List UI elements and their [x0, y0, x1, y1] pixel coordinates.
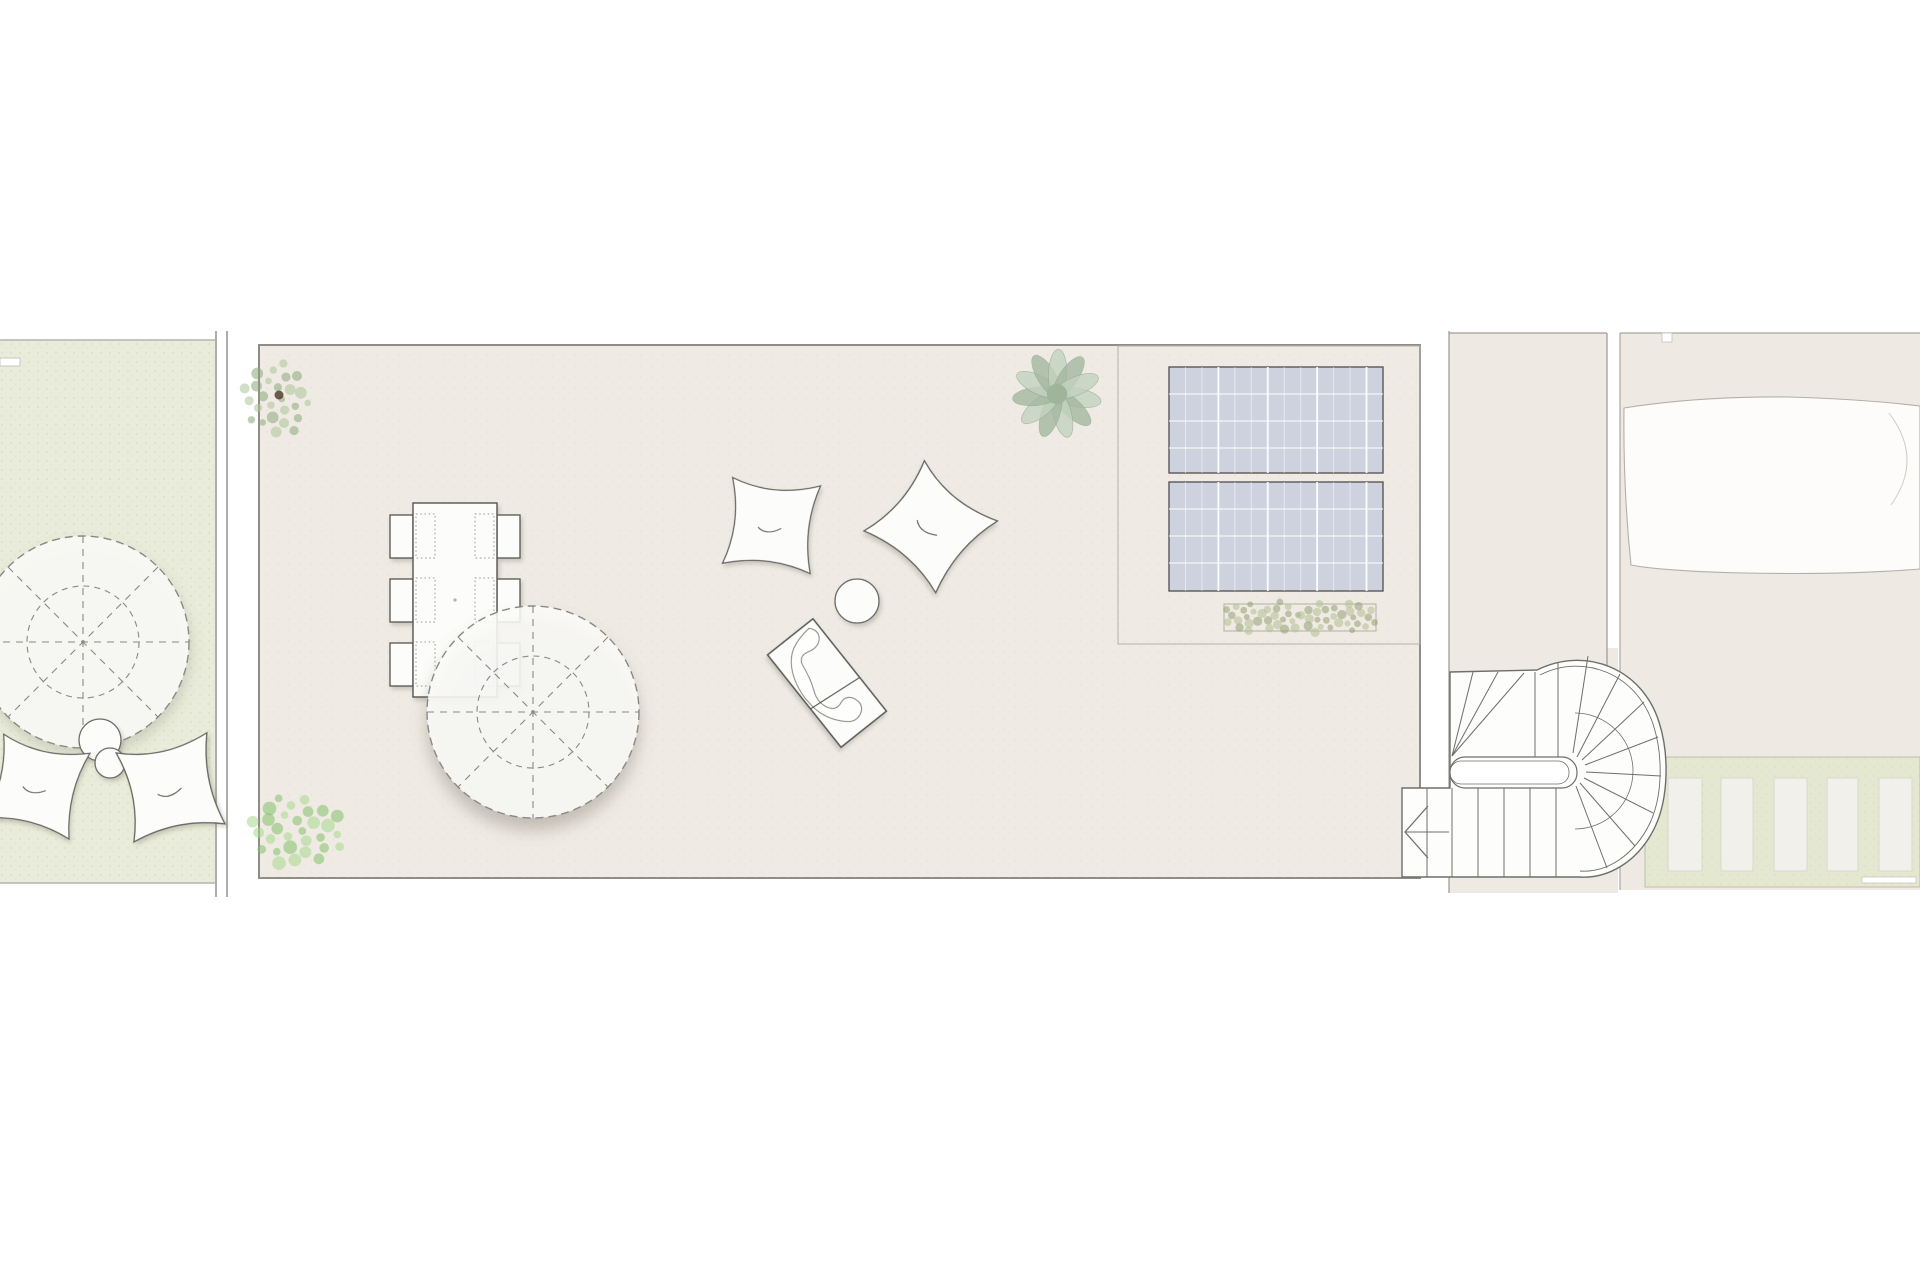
shrub-foliage: [1313, 608, 1321, 616]
staircase: [1402, 656, 1666, 877]
plant-foliage: [333, 831, 341, 839]
shrub-foliage: [1304, 621, 1313, 630]
plant-foliage: [272, 856, 286, 870]
plant-foliage: [307, 816, 320, 829]
plant-foliage: [247, 816, 259, 828]
shrub-foliage: [1354, 602, 1362, 610]
shrub-foliage: [1322, 606, 1330, 614]
dining-chair: [390, 515, 413, 558]
shrub-foliage: [1264, 616, 1272, 624]
stepping-slab: [1721, 778, 1753, 871]
shrub-foliage: [1304, 606, 1312, 614]
plant-foliage: [271, 426, 282, 437]
floor-plan-stage: [0, 0, 1920, 1280]
solar-panel: [1169, 367, 1383, 473]
plant-foliage: [316, 833, 325, 842]
shrub-foliage: [1247, 601, 1253, 607]
shrub-foliage: [1235, 623, 1243, 631]
shrub-foliage: [1264, 606, 1272, 614]
wall-opening: [0, 358, 20, 366]
plant-foliage: [279, 359, 287, 367]
shrub-foliage: [1240, 607, 1247, 614]
plant-foliage: [270, 366, 277, 373]
side-table: [95, 748, 125, 778]
shrub-foliage: [1327, 624, 1333, 630]
shrub-foliage: [1334, 618, 1343, 627]
plant-foliage: [292, 816, 302, 826]
plant-foliage: [275, 794, 283, 802]
shrub-foliage: [1365, 613, 1373, 621]
shrub-foliage: [1314, 617, 1320, 623]
shrub-foliage: [1331, 605, 1338, 612]
plant-foliage: [265, 378, 272, 385]
plant-foliage: [300, 846, 312, 858]
shrub-foliage: [1345, 600, 1353, 608]
plant-foliage: [285, 384, 296, 395]
stepping-slab: [1668, 778, 1702, 871]
edge-plank: [1862, 877, 1916, 883]
plant-foliage: [273, 848, 281, 856]
plant-foliage: [281, 372, 290, 381]
plant-foliage: [335, 842, 344, 851]
shrub-foliage: [1349, 627, 1355, 633]
lounge-cushion: [721, 474, 823, 576]
shrub-foliage: [1330, 613, 1337, 620]
shrub-foliage: [1310, 628, 1319, 637]
shrub-foliage: [1297, 611, 1305, 619]
plant-foliage: [314, 853, 325, 864]
dining-chair: [390, 579, 413, 622]
plant-foliage: [289, 426, 298, 435]
plant-foliage: [331, 810, 344, 823]
plant-foliage: [267, 412, 279, 424]
shrub-foliage: [1316, 600, 1324, 608]
stepping-slab: [1774, 778, 1807, 871]
shrub-foliage: [1337, 610, 1346, 619]
plant-foliage: [240, 383, 250, 393]
plant-foliage: [304, 400, 311, 407]
shrub-foliage: [1318, 624, 1324, 630]
shrub-foliage: [1367, 606, 1375, 614]
plant-foliage: [321, 819, 335, 833]
cushion-body: [721, 474, 823, 576]
pool-canopy: [1624, 397, 1920, 574]
plant-foliage: [266, 834, 276, 844]
plant-foliage: [298, 827, 306, 835]
plant-foliage: [259, 419, 266, 426]
stepping-slab: [1827, 778, 1858, 871]
solar-panel: [1169, 482, 1383, 591]
plant-foliage: [258, 391, 268, 401]
plant-foliage: [271, 823, 283, 835]
shrub-foliage: [1345, 621, 1351, 627]
parasol: [427, 606, 639, 818]
shrub-foliage: [1345, 607, 1354, 616]
plant-center: [1047, 384, 1067, 404]
shrub-foliage: [1233, 603, 1240, 610]
plant-foliage: [254, 404, 262, 412]
shrub-foliage: [1285, 610, 1292, 617]
shrub-foliage: [1371, 619, 1378, 626]
dining-chair: [497, 515, 520, 558]
plant-foliage: [295, 387, 307, 399]
plant-foliage: [279, 418, 289, 428]
shrub-foliage: [1244, 627, 1252, 635]
plant-foliage: [317, 805, 329, 817]
plant-foliage: [284, 832, 293, 841]
right-parcel: [1620, 333, 1920, 890]
plant-foliage: [292, 403, 299, 410]
shrub-foliage: [1362, 623, 1369, 630]
plant-foliage: [287, 801, 296, 810]
shrub-foliage: [1289, 618, 1295, 624]
shrub-foliage: [1285, 603, 1292, 610]
plant-foliage: [280, 405, 289, 414]
plant-foliage: [267, 401, 274, 408]
plant-foliage: [281, 811, 289, 819]
plant-foliage: [283, 840, 297, 854]
plant-core: [275, 391, 284, 400]
shrub-foliage: [1228, 612, 1236, 620]
plant-foliage: [300, 795, 310, 805]
stepping-slab: [1879, 778, 1912, 871]
plant-foliage: [294, 414, 302, 422]
shrub-foliage: [1273, 605, 1281, 613]
plant-foliage: [301, 835, 312, 846]
plant-foliage: [319, 843, 329, 853]
shrub-foliage: [1265, 624, 1273, 632]
shrub-foliage: [1290, 623, 1299, 632]
solar-panel-surface: [1169, 367, 1383, 473]
table-center-mark: [453, 598, 456, 601]
plant-foliage: [303, 806, 314, 817]
plant-foliage: [253, 827, 264, 838]
shrub-foliage: [1234, 616, 1242, 624]
plant-foliage: [251, 368, 263, 380]
shrub-foliage: [1280, 625, 1289, 634]
plant-foliage: [257, 845, 266, 854]
floor-plan: [0, 0, 1920, 1280]
plant-foliage: [292, 371, 302, 381]
shrub-foliage: [1253, 617, 1262, 626]
plant-foliage: [245, 396, 254, 405]
stair-well: [1450, 757, 1577, 788]
shrub-foliage: [1251, 609, 1257, 615]
shrub-foliage: [1277, 599, 1284, 606]
shrub-foliage: [1354, 620, 1361, 627]
shrub-foliage: [1223, 606, 1230, 613]
shrub-foliage: [1245, 619, 1254, 628]
plant-foliage: [289, 854, 302, 867]
plant-foliage: [274, 383, 282, 391]
plant-foliage: [251, 381, 262, 392]
parcel-notch: [1662, 333, 1672, 342]
shrub-foliage: [1323, 617, 1330, 624]
plant-foliage: [263, 802, 277, 816]
shrub-foliage: [1224, 618, 1232, 626]
side-table: [835, 579, 879, 623]
dining-chair: [390, 643, 413, 686]
plant-foliage: [248, 416, 255, 423]
